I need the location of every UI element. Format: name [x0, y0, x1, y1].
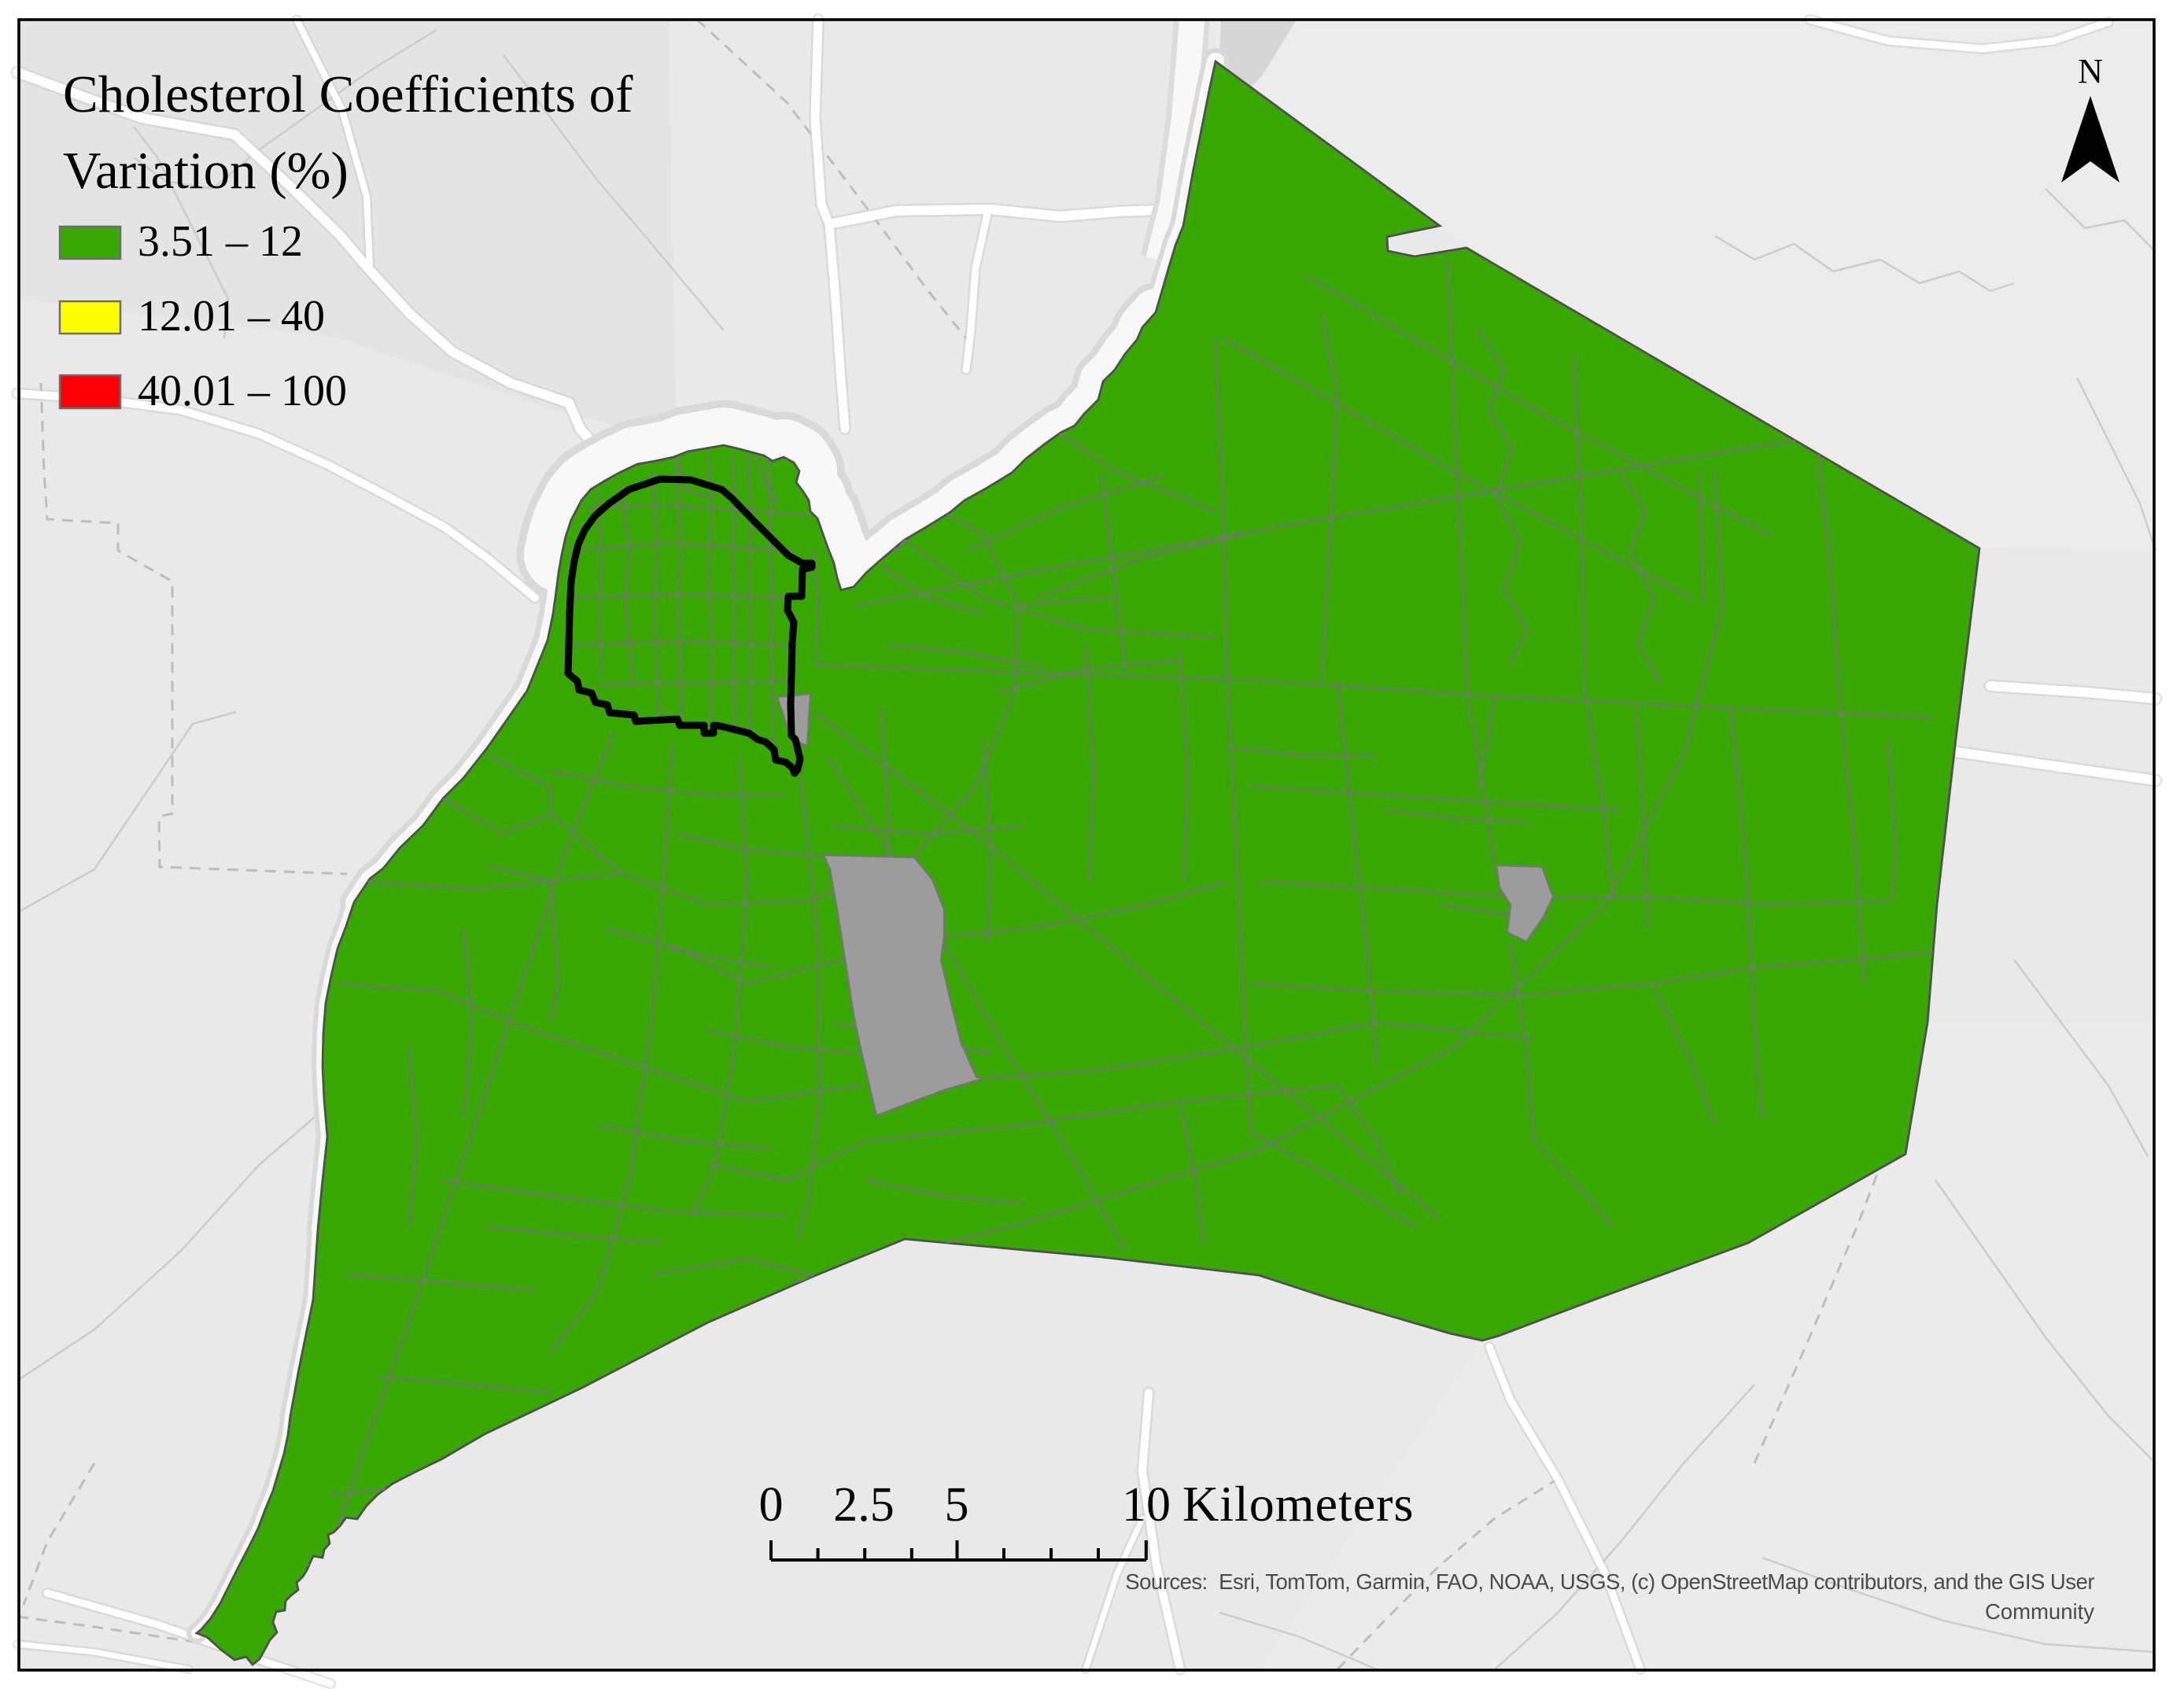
svg-text:5: 5 — [945, 1478, 969, 1532]
svg-text:0: 0 — [759, 1478, 784, 1532]
svg-text:Variation (%): Variation (%) — [63, 142, 349, 200]
svg-text:Kilometers: Kilometers — [1182, 1476, 1414, 1532]
svg-text:2.5: 2.5 — [833, 1478, 895, 1532]
svg-text:40.01 – 100: 40.01 – 100 — [138, 367, 347, 415]
svg-text:Cholesterol Coefficients of: Cholesterol Coefficients of — [63, 65, 633, 124]
svg-text:10: 10 — [1122, 1478, 1171, 1532]
svg-text:N: N — [2078, 52, 2103, 90]
svg-text:3.51 – 12: 3.51 – 12 — [138, 217, 303, 266]
svg-text:12.01 – 40: 12.01 – 40 — [138, 292, 325, 341]
svg-text:Community: Community — [1985, 1599, 2094, 1624]
svg-text:Sources: Esri, TomTom, Garmin: Sources: Esri, TomTom, Garmin, FAO, NOAA… — [1125, 1569, 2094, 1594]
